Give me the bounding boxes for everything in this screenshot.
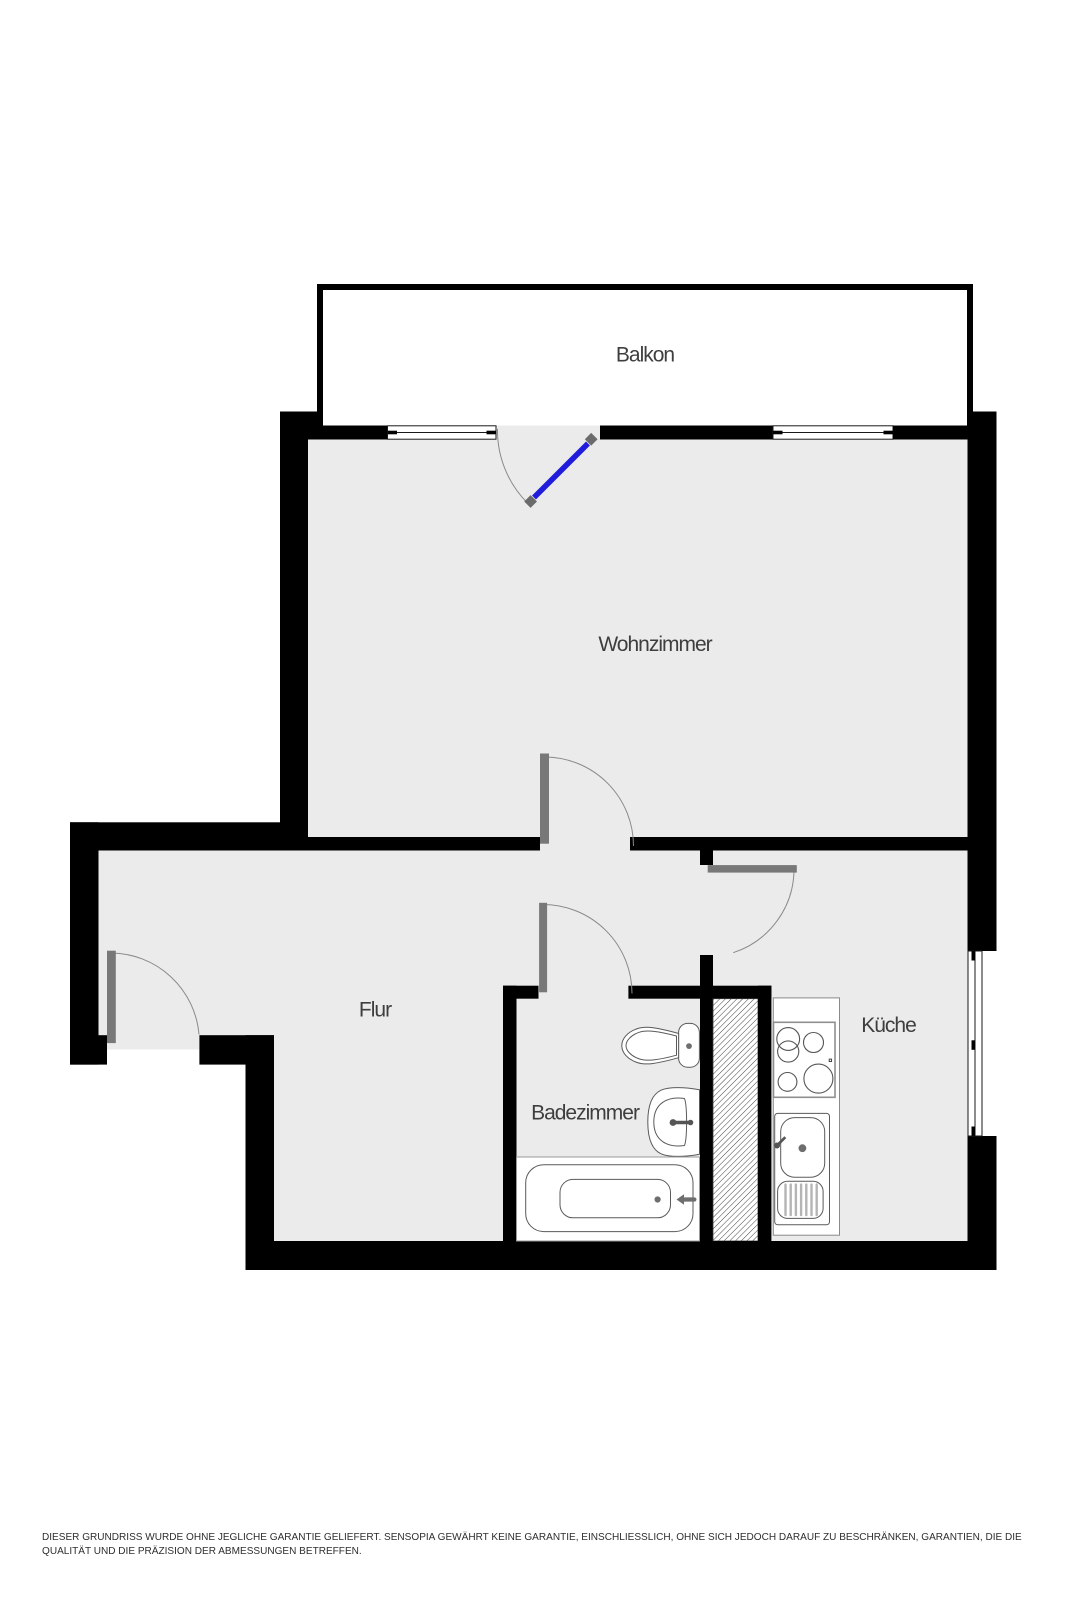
svg-text:Flur: Flur [359,999,392,1022]
svg-text:DIESER GRUNDRISS WURDE OHNE JE: DIESER GRUNDRISS WURDE OHNE JEGLICHE GAR… [42,1531,1022,1543]
svg-text:Wohnzimmer: Wohnzimmer [598,633,712,656]
svg-text:Badezimmer: Badezimmer [531,1102,640,1125]
svg-text:Küche: Küche [861,1014,916,1037]
svg-text:Balkon: Balkon [616,344,675,367]
svg-text:QUALITÄT UND DIE PRÄZISION DER: QUALITÄT UND DIE PRÄZISION DER ABMESSUNG… [42,1545,362,1557]
